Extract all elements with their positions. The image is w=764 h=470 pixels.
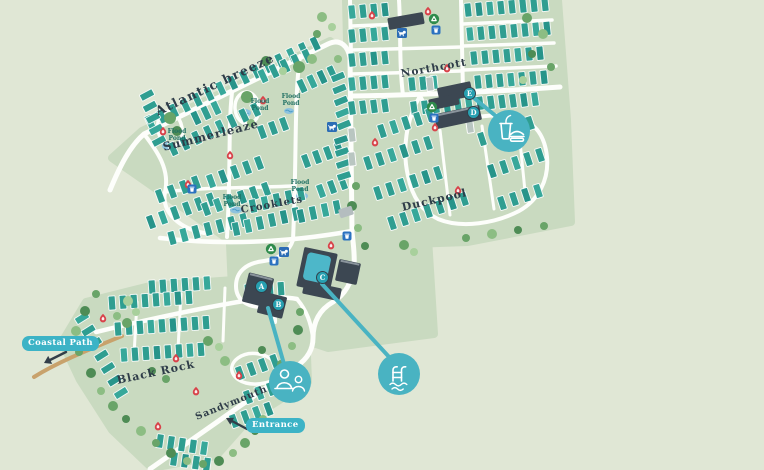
dog-walk-areas <box>279 247 289 257</box>
reception-people-icon <box>269 361 311 403</box>
dog-walk-icon <box>397 28 407 38</box>
recycling-points <box>266 244 276 254</box>
dog-walk-areas <box>327 122 337 132</box>
coastal-path-arrow <box>50 352 66 360</box>
flood-pond-label: Flood Pond <box>217 195 247 208</box>
recycling-icon <box>427 102 437 112</box>
waste-bins <box>430 114 439 123</box>
waste-bin-icon <box>432 26 441 35</box>
holiday-park-map: Atlantic breeze Summerleaze Crooklets No… <box>0 0 764 470</box>
dog-walk-icon <box>327 122 337 132</box>
waste-bin-icon <box>270 257 279 266</box>
coastal-path-badge[interactable]: Coastal Path <box>22 336 99 351</box>
map-canvas <box>0 0 764 470</box>
recycling-icon <box>266 244 276 254</box>
dog-walk-areas <box>397 28 407 38</box>
flood-pond-label: Flood Pond <box>285 180 315 193</box>
swimming-pool-poi[interactable] <box>378 353 420 395</box>
entrance-badge[interactable]: Entrance <box>246 418 305 433</box>
waste-bin-icon <box>343 232 352 241</box>
flood-pond-label: Flood Pond <box>162 129 192 142</box>
recycling-icon <box>429 14 439 24</box>
reception-poi[interactable] <box>269 361 311 403</box>
swimming-pool-icon <box>378 353 420 395</box>
waste-bins <box>270 257 279 266</box>
recycling-points <box>429 14 439 24</box>
waste-bin-icon <box>188 185 197 194</box>
waste-bins <box>432 26 441 35</box>
waste-bins <box>188 185 197 194</box>
dog-walk-icon <box>279 247 289 257</box>
waste-bin-icon <box>430 114 439 123</box>
waste-bins <box>343 232 352 241</box>
building-marker-d[interactable]: D <box>467 106 480 119</box>
building-marker-c[interactable]: C <box>316 271 329 284</box>
recycling-points <box>427 102 437 112</box>
flood-pond-label: Flood Pond <box>276 94 306 107</box>
building-marker-e[interactable]: E <box>463 87 476 100</box>
flood-pond-label: Flood Pond <box>245 99 275 112</box>
building-marker-a[interactable]: A <box>255 280 268 293</box>
building-marker-b[interactable]: B <box>272 298 285 311</box>
food-drink-poi[interactable] <box>488 110 530 152</box>
